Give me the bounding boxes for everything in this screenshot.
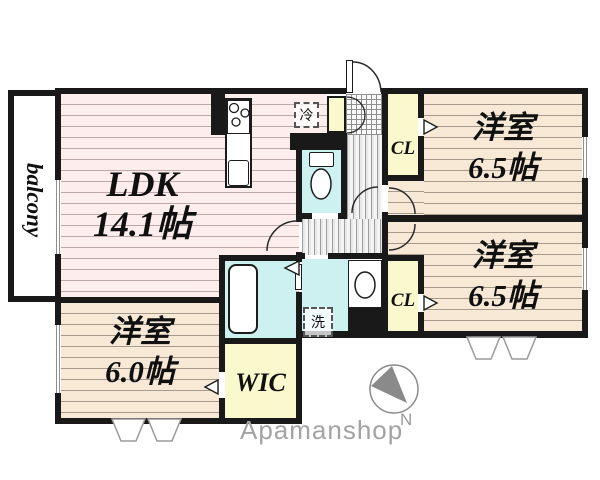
balcony-label: balcony — [12, 120, 56, 280]
window-vent-mark — [148, 419, 181, 441]
ldk-area: 14.1帖 — [60, 204, 225, 244]
room-area: 6.0帖 — [61, 352, 219, 392]
bedroom-top-right-label: 洋室 6.5帖 — [424, 108, 582, 188]
room-area: 6.5帖 — [424, 148, 582, 188]
bedroom-bottom-left-label: 洋室 6.0帖 — [61, 312, 219, 392]
window-vent-mark — [112, 419, 145, 441]
ldk-door-arc — [267, 221, 297, 251]
toilet-bowl — [311, 169, 331, 199]
watermark: Apamanshop — [240, 415, 403, 446]
stove-burner — [230, 104, 239, 113]
bedroom-top-right-door-arc — [389, 188, 415, 214]
window-vent-mark — [503, 337, 536, 359]
ldk-label: LDK 14.1帖 — [60, 164, 225, 244]
window-vent-mark — [467, 337, 500, 359]
wic-label: WIC — [225, 368, 296, 398]
floorplan-canvas: 冷 洗 N b — [0, 0, 600, 480]
bathroom-door-mark — [285, 261, 299, 275]
entrance-door-arc — [353, 62, 381, 92]
bedroom-bottom-right-label: 洋室 6.5帖 — [424, 236, 582, 316]
bedroom-bottom-right-door-arc — [389, 224, 415, 250]
compass-needle — [371, 366, 407, 403]
room-name: 洋室 — [424, 236, 582, 276]
room-area: 6.5帖 — [424, 276, 582, 316]
room-name: 洋室 — [61, 312, 219, 352]
toilet-door-arc — [352, 187, 378, 213]
room-name: 洋室 — [424, 108, 582, 148]
ldk-name: LDK — [60, 164, 225, 204]
stove-burner — [232, 118, 240, 126]
genkan-door-arc — [347, 97, 365, 115]
stove-burner — [241, 109, 249, 117]
closet-bottom-label: CL — [388, 290, 418, 312]
closet-top-label: CL — [388, 138, 418, 160]
genkan-door-arc — [347, 115, 365, 133]
washbasin-bowl — [355, 272, 375, 298]
